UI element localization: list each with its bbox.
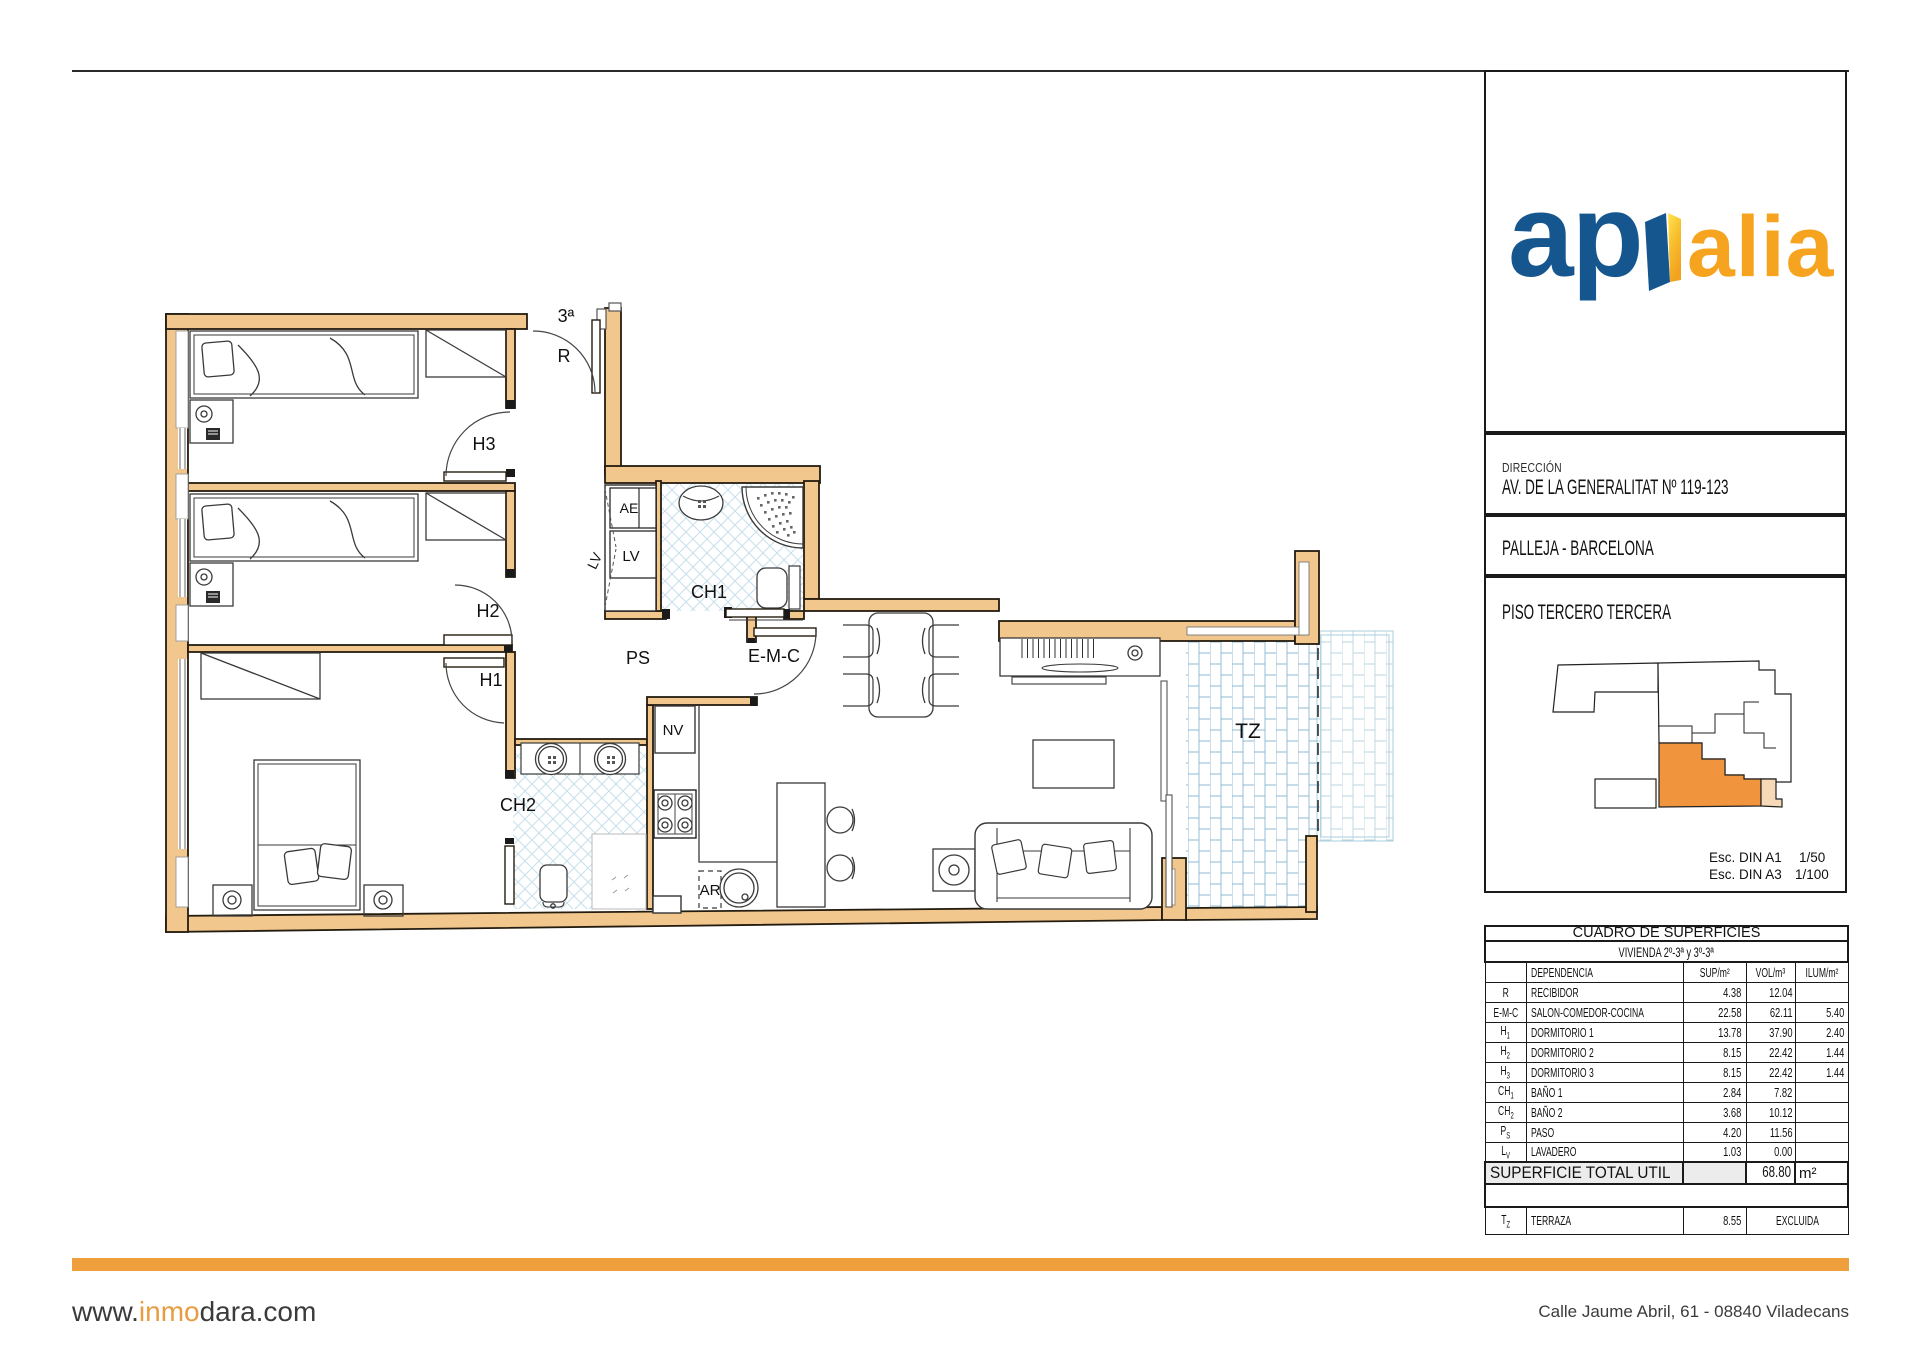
svg-text:H3: H3 [472,434,495,454]
svg-text:TZ: TZ [1235,720,1261,743]
svg-text:E-M-C: E-M-C [748,646,800,666]
svg-text:LV: LV [622,548,639,565]
svg-text:H2: H2 [476,601,499,621]
svg-text:1/100: 1/100 [1795,867,1829,882]
svg-text:Esc. DIN A1: Esc. DIN A1 [1709,850,1782,865]
svg-text:PS: PS [626,648,650,668]
svg-text:CH2: CH2 [500,795,536,815]
svg-text:1/50: 1/50 [1799,850,1825,865]
svg-text:CH1: CH1 [691,582,727,602]
svg-text:H1: H1 [479,670,502,690]
svg-text:LV: LV [584,549,606,571]
svg-text:Esc. DIN A3: Esc. DIN A3 [1709,867,1782,882]
svg-text:NV: NV [663,722,684,739]
svg-text:3ª: 3ª [558,306,575,326]
svg-text:AE: AE [620,500,639,516]
svg-text:R: R [558,346,571,366]
svg-text:AR: AR [700,882,721,899]
